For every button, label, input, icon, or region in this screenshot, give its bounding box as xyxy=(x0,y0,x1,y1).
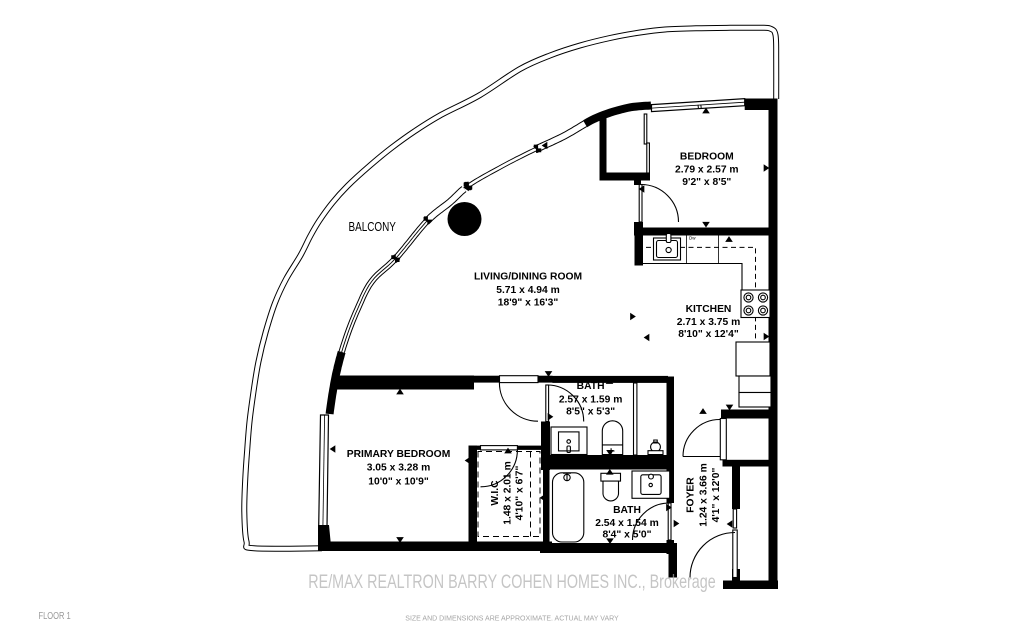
svg-text:BATH: BATH xyxy=(577,381,605,392)
svg-text:10'0" x 10'9": 10'0" x 10'9" xyxy=(368,476,429,487)
svg-text:9'2" x 8'5": 9'2" x 8'5" xyxy=(682,177,731,188)
svg-text:RE/MAX REALTRON BARRY COHEN HO: RE/MAX REALTRON BARRY COHEN HOMES INC., … xyxy=(308,572,715,593)
svg-text:2.54 x 1.54 m: 2.54 x 1.54 m xyxy=(595,518,659,529)
svg-text:5.71 x 4.94 m: 5.71 x 4.94 m xyxy=(496,285,560,296)
svg-text:BATH: BATH xyxy=(613,505,641,516)
svg-text:2.57 x 1.59 m: 2.57 x 1.59 m xyxy=(559,394,623,405)
svg-text:8'10" x 12'4": 8'10" x 12'4" xyxy=(678,329,739,340)
svg-text:1.48 x 2.01 m: 1.48 x 2.01 m xyxy=(503,461,514,525)
svg-text:KITCHEN: KITCHEN xyxy=(686,304,732,315)
svg-text:SIZE AND DIMENSIONS ARE APPROX: SIZE AND DIMENSIONS ARE APPROXIMATE. ACT… xyxy=(405,616,619,623)
svg-text:FLOOR 1: FLOOR 1 xyxy=(39,611,72,622)
svg-text:18'9" x 16'3": 18'9" x 16'3" xyxy=(498,297,559,308)
svg-text:W.I.C: W.I.C xyxy=(490,480,501,506)
svg-text:PRIMARY BEDROOM: PRIMARY BEDROOM xyxy=(347,449,451,460)
svg-text:BEDROOM: BEDROOM xyxy=(680,152,734,163)
svg-text:BALCONY: BALCONY xyxy=(348,219,396,234)
svg-text:4'1" x 12'0": 4'1" x 12'0" xyxy=(711,468,722,523)
svg-text:LIVING/DINING ROOM: LIVING/DINING ROOM xyxy=(474,271,582,282)
svg-text:3.05 x 3.28 m: 3.05 x 3.28 m xyxy=(367,463,431,474)
svg-text:8'4" x 5'0": 8'4" x 5'0" xyxy=(602,529,651,540)
svg-text:2.71 x 3.75 m: 2.71 x 3.75 m xyxy=(677,317,741,328)
svg-text:1.24 x 3.66 m: 1.24 x 3.66 m xyxy=(699,463,710,527)
svg-text:4'10" x 6'7": 4'10" x 6'7" xyxy=(515,466,526,521)
svg-text:8'5" x 5'3": 8'5" x 5'3" xyxy=(566,407,615,418)
svg-text:2.79 x 2.57 m: 2.79 x 2.57 m xyxy=(675,165,739,176)
svg-text:FOYER: FOYER xyxy=(686,477,697,513)
svg-text:Dw: Dw xyxy=(689,236,696,241)
